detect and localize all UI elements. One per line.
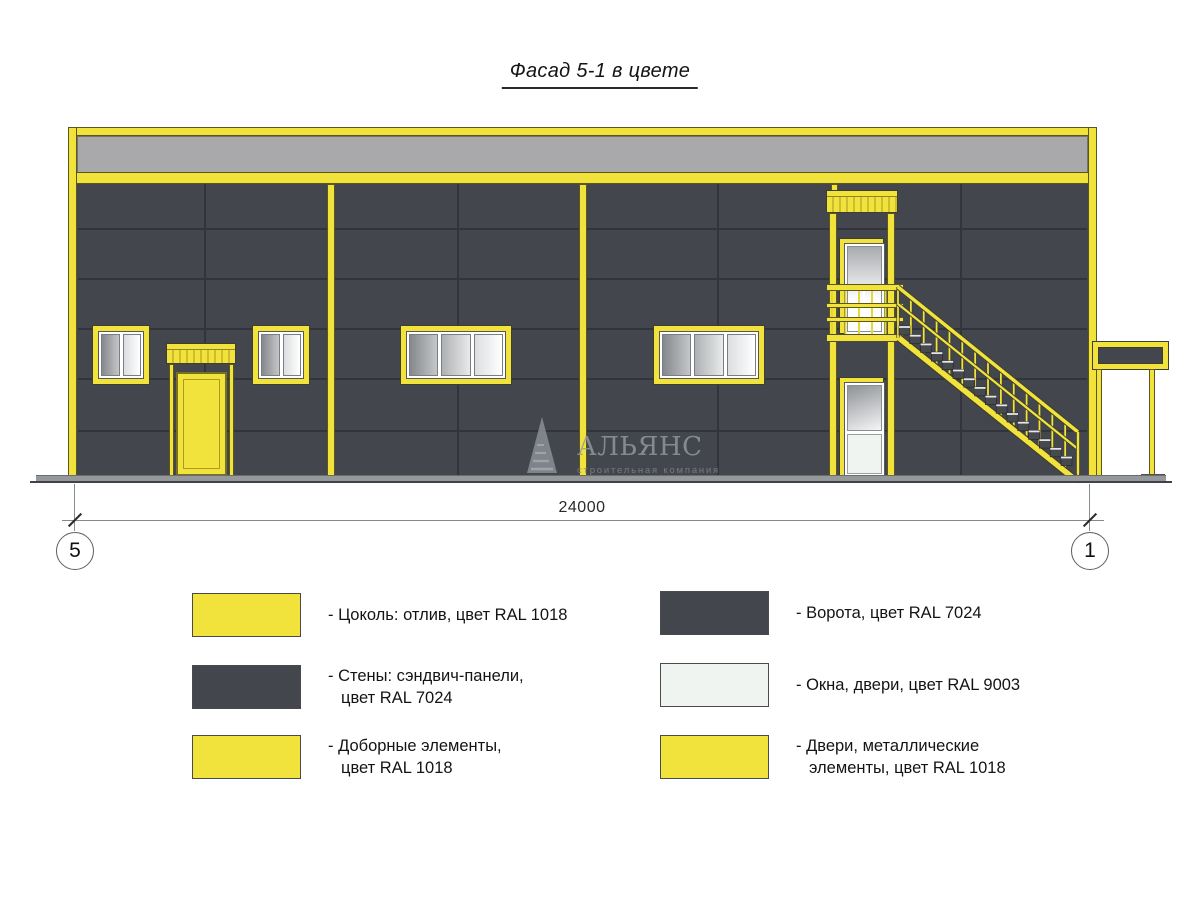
legend-swatch: [192, 665, 301, 709]
porch-post: [1149, 369, 1155, 476]
window: [92, 325, 150, 385]
legend-label: - Окна, двери, цвет RAL 9003: [796, 674, 1020, 696]
legend-item: - Стены: сэндвич-панели, цвет RAL 7024: [192, 665, 524, 709]
axis-bubble-1: 1: [1071, 532, 1109, 570]
tower-canopy: [826, 190, 898, 213]
side-porch-canopy: [1093, 342, 1168, 369]
axis-label: 5: [69, 539, 81, 563]
door-frame: [844, 382, 885, 477]
legend-swatch: [192, 735, 301, 779]
legend-label: - Ворота, цвет RAL 7024: [796, 602, 982, 624]
window: [653, 325, 765, 385]
ground-line: [30, 481, 1172, 483]
tower-post: [829, 213, 837, 476]
canopy-cap: [167, 344, 235, 350]
door-bottom-panel: [847, 434, 882, 474]
legend-swatch: [660, 591, 769, 635]
canopy-cap: [827, 191, 897, 197]
legend-label: - Двери, металлические: [796, 735, 1006, 757]
lower-level-door: [839, 377, 884, 476]
legend-label-line2: элементы, цвет RAL 1018: [809, 757, 1006, 779]
yellow-column-trim: [327, 184, 335, 477]
window: [252, 325, 310, 385]
window-frame: [406, 331, 506, 379]
window-pane: [123, 334, 142, 376]
extension-line: [1089, 484, 1090, 531]
window-pane: [261, 334, 280, 376]
cornice-flashing: [68, 172, 1097, 184]
drawing-title: Фасад 5-1 в цвете: [502, 60, 698, 89]
porch-post: [1096, 369, 1102, 476]
window-frame: [98, 331, 144, 379]
legend-item: - Доборные элементы, цвет RAL 1018: [192, 735, 502, 779]
left-corner-trim: [68, 127, 77, 478]
legend-item: - Цоколь: отлив, цвет RAL 1018: [192, 593, 567, 637]
window-pane: [662, 334, 691, 376]
parapet-band: [77, 136, 1088, 173]
window: [400, 325, 512, 385]
legend-item: - Двери, металлические элементы, цвет RA…: [660, 735, 1006, 779]
window-pane: [474, 334, 503, 376]
facade-drawing-sheet: Фасад 5-1 в цвете: [0, 0, 1200, 900]
door-panel-outline: [183, 379, 220, 469]
yellow-column-trim: [579, 184, 587, 477]
window-pane: [694, 334, 723, 376]
window-frame: [258, 331, 304, 379]
dimension-value: 24000: [490, 499, 674, 517]
window-pane: [441, 334, 470, 376]
legend-label: - Доборные элементы,: [328, 735, 502, 757]
entrance-door: [176, 372, 227, 476]
legend-swatch: [660, 663, 769, 707]
canopy-post: [229, 364, 234, 476]
legend-label: - Стены: сэндвич-панели,: [328, 665, 524, 687]
legend-label-line2: цвет RAL 1018: [341, 757, 502, 779]
window-pane: [727, 334, 756, 376]
axis-label: 1: [1084, 539, 1096, 563]
window-pane: [409, 334, 438, 376]
window-frame: [659, 331, 759, 379]
legend-swatch: [660, 735, 769, 779]
external-staircase: [886, 278, 1086, 484]
legend-swatch: [192, 593, 301, 637]
dimension-line: [62, 520, 1104, 521]
legend-item: - Окна, двери, цвет RAL 9003: [660, 663, 1020, 707]
door-glass: [847, 385, 882, 431]
window-pane: [101, 334, 120, 376]
legend-item: - Ворота, цвет RAL 7024: [660, 591, 982, 635]
extension-line: [74, 484, 75, 531]
axis-bubble-5: 5: [56, 532, 94, 570]
canopy-post: [169, 364, 174, 476]
roof-cap-strip: [68, 127, 1097, 136]
entrance-canopy: [166, 343, 236, 364]
window-pane: [283, 334, 302, 376]
legend-label: - Цоколь: отлив, цвет RAL 1018: [328, 604, 567, 626]
legend-label-line2: цвет RAL 7024: [341, 687, 524, 709]
